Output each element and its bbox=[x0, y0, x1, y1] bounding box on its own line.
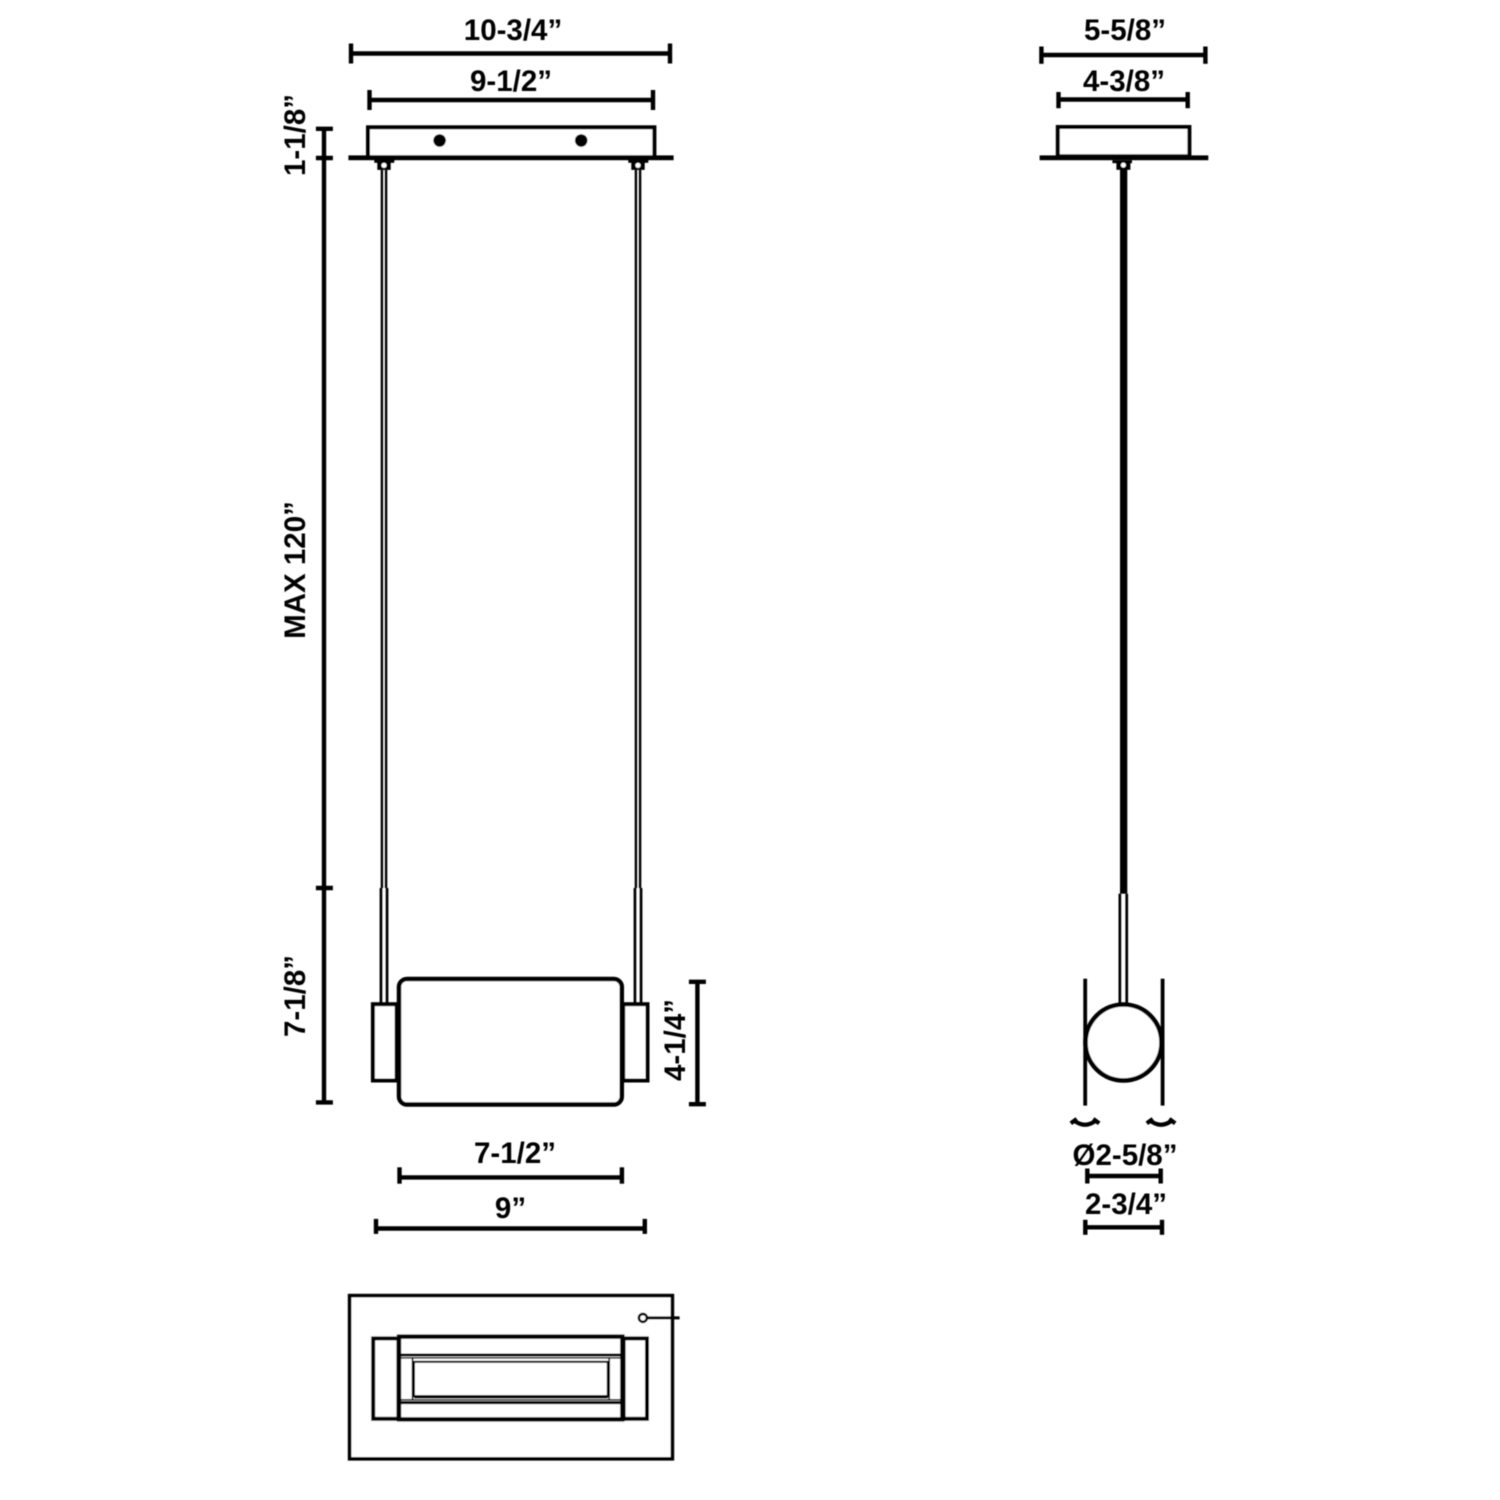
svg-text:1-1/8”: 1-1/8” bbox=[279, 94, 312, 176]
svg-text:7-1/8”: 7-1/8” bbox=[279, 955, 312, 1037]
svg-text:7-1/2”: 7-1/2” bbox=[474, 1137, 556, 1170]
svg-text:10-3/4”: 10-3/4” bbox=[464, 14, 562, 47]
svg-text:4-1/4”: 4-1/4” bbox=[659, 999, 692, 1081]
svg-text:5-5/8”: 5-5/8” bbox=[1084, 14, 1166, 47]
svg-text:9-1/2”: 9-1/2” bbox=[470, 65, 552, 98]
svg-text:MAX 120”: MAX 120” bbox=[279, 501, 312, 639]
svg-text:Ø2-5/8”: Ø2-5/8” bbox=[1073, 1139, 1178, 1172]
svg-text:4-3/8”: 4-3/8” bbox=[1083, 65, 1165, 98]
svg-text:9”: 9” bbox=[495, 1192, 526, 1225]
svg-text:2-3/4”: 2-3/4” bbox=[1085, 1188, 1167, 1221]
